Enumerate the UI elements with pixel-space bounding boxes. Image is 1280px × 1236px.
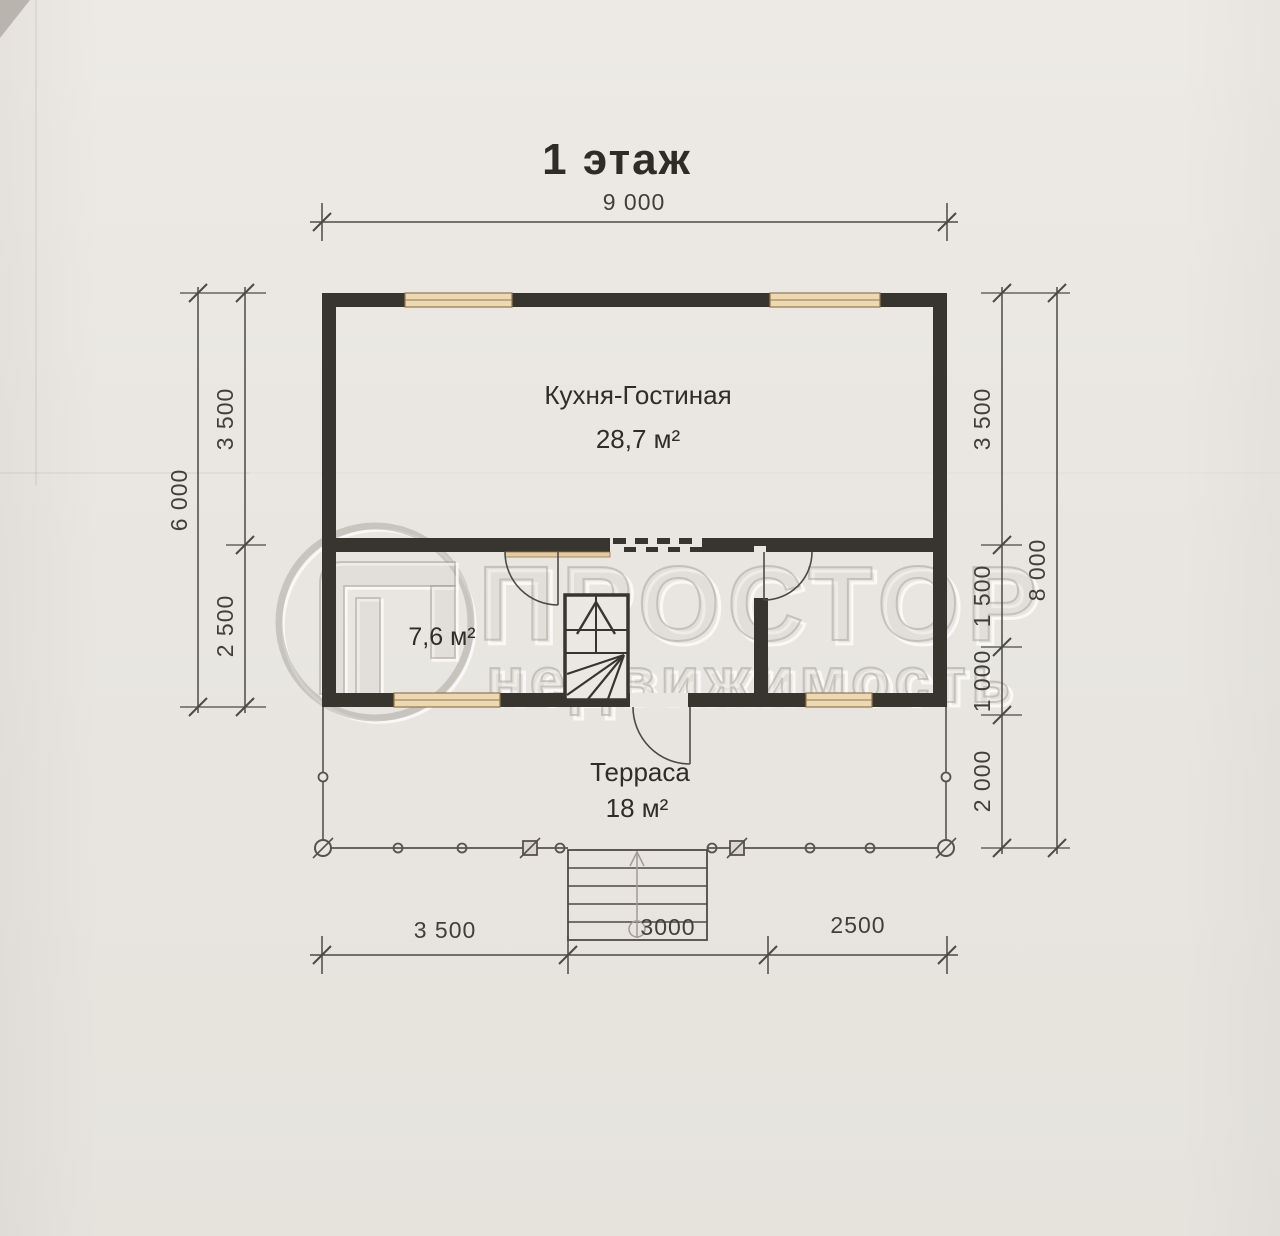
room-label-kitchen-living: Кухня-Гостиная [544,380,731,410]
room-area-hall: 7,6 м² [408,623,475,651]
wall-right [933,293,947,707]
dim-right-seg-4: 2 000 [969,750,995,813]
dim-left-seg-2: 2 500 [212,595,238,658]
room-area-terrace: 18 м² [606,793,669,823]
dim-right-seg-3: 1 000 [969,650,995,713]
room-area-kitchen-living: 28,7 м² [596,424,681,454]
wall-left [322,293,336,707]
dim-bottom-seg-2: 3000 [640,914,695,940]
logo-inner-bar [356,598,380,694]
window-top-1 [405,293,512,307]
room-label-terrace: Терраса [590,757,690,787]
page-title: 1 этаж [542,135,692,184]
scanned-floor-plan-page: ПРОСТОР ПРОСТОР недвижимость недвижимост… [0,0,1280,1236]
dim-right-seg-1: 3 500 [969,388,995,451]
window-bottom-2 [806,693,872,707]
terrace-baluster [942,773,951,782]
staircase [565,595,628,700]
terrace-baluster [319,773,328,782]
window-top-2 [770,293,880,307]
window-bottom-1 [394,693,500,707]
dim-bottom-seg-1: 3 500 [414,917,477,943]
dim-top: 9 000 [603,189,666,215]
dim-right-outer: 8 000 [1024,539,1050,602]
terrace-door-opening [630,693,688,707]
door-jamb-notch [754,546,766,552]
dim-left-outer: 6 000 [166,469,192,532]
wall-interior-vertical [754,598,768,693]
dim-left-seg-1: 3 500 [212,388,238,451]
dim-bottom-seg-3: 2500 [830,912,885,938]
floor-plan-drawing: ПРОСТОР ПРОСТОР недвижимость недвижимост… [0,0,1280,1236]
dim-right-seg-2: 1 500 [969,565,995,628]
